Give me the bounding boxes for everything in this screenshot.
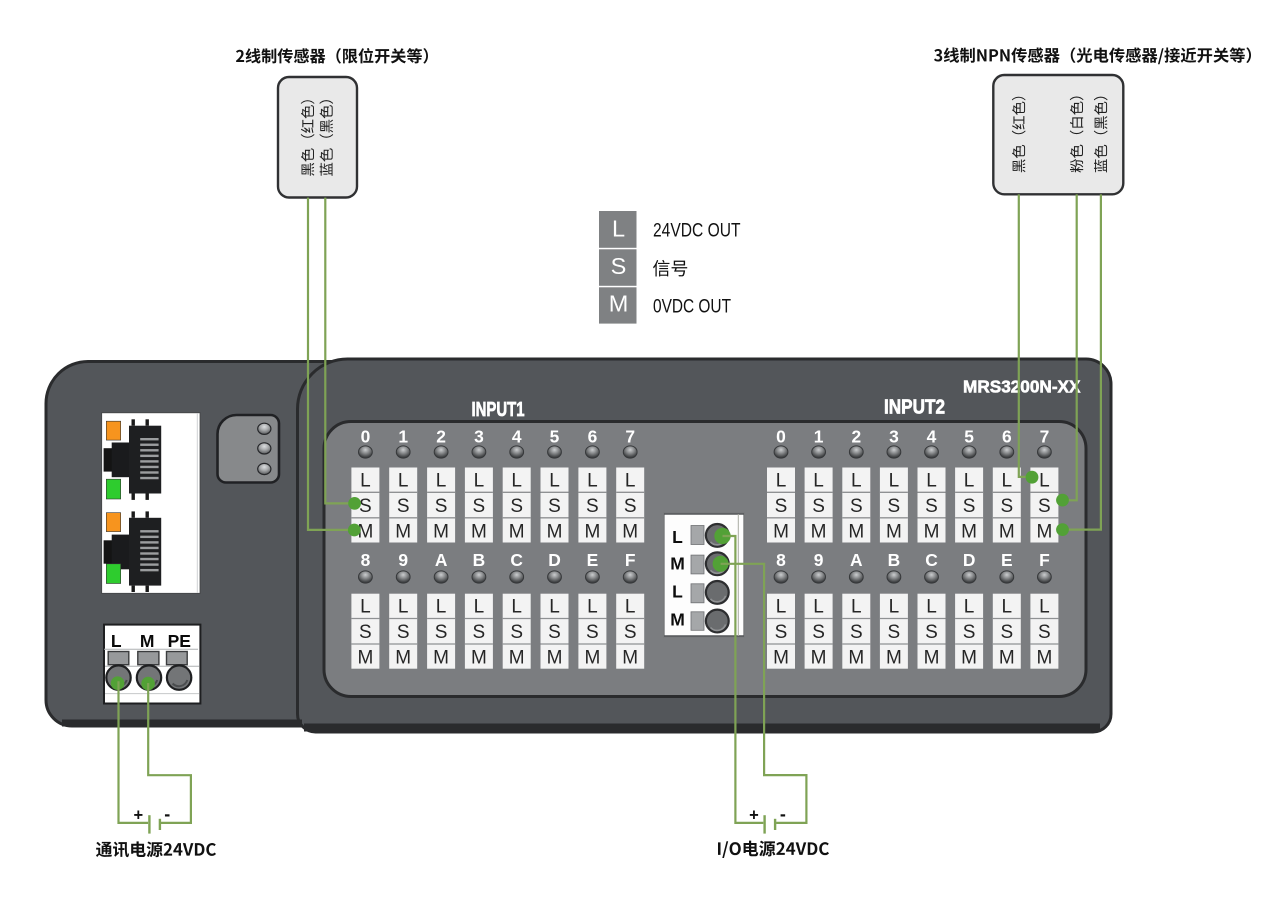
svg-text:S: S [1038,622,1051,643]
svg-text:L: L [813,597,824,618]
svg-text:S: S [624,496,637,517]
svg-text:4: 4 [927,426,937,446]
svg-text:M: M [999,521,1015,542]
svg-text:S: S [925,622,938,643]
svg-text:M: M [961,648,977,669]
svg-text:L: L [111,631,122,651]
svg-text:M: M [547,521,563,542]
svg-text:7: 7 [625,426,635,446]
svg-text:L: L [612,215,625,241]
svg-text:3: 3 [889,426,899,446]
svg-text:MRS3200N-XX: MRS3200N-XX [963,377,1081,397]
svg-text:L: L [625,470,636,491]
svg-text:L: L [851,597,862,618]
svg-text:0: 0 [776,426,786,446]
svg-text:M: M [848,521,864,542]
svg-text:M: M [471,521,487,542]
svg-text:S: S [963,622,976,643]
svg-text:L: L [436,597,447,618]
svg-text:-: - [780,804,786,824]
svg-text:S: S [1000,622,1013,643]
svg-text:M: M [584,521,600,542]
svg-text:5: 5 [964,426,974,446]
svg-text:24VDC OUT: 24VDC OUT [653,220,741,241]
svg-text:M: M [924,521,940,542]
svg-text:S: S [586,622,599,643]
svg-text:M: M [609,291,629,317]
svg-text:M: M [811,521,827,542]
svg-text:+: + [749,807,759,825]
svg-text:L: L [851,470,862,491]
svg-text:6: 6 [588,426,598,446]
svg-text:M: M [999,648,1015,669]
svg-text:S: S [548,622,561,643]
svg-text:2: 2 [436,426,446,446]
svg-text:M: M [509,521,525,542]
svg-text:S: S [624,622,637,643]
svg-text:M: M [886,648,902,669]
svg-text:+: + [133,807,143,825]
svg-text:L: L [398,597,409,618]
svg-text:L: L [813,470,824,491]
svg-text:C: C [925,550,938,570]
svg-text:1: 1 [814,426,824,446]
svg-text:S: S [1000,496,1013,517]
svg-text:L: L [964,470,975,491]
svg-text:M: M [811,648,827,669]
svg-text:L: L [964,597,975,618]
svg-text:L: L [889,597,900,618]
svg-text:M: M [395,521,411,542]
svg-text:A: A [850,550,863,570]
svg-text:M: M [547,648,563,669]
svg-text:S: S [850,622,863,643]
svg-text:M: M [584,648,600,669]
svg-text:INPUT2: INPUT2 [884,397,945,419]
svg-text:M: M [773,648,789,669]
svg-text:E: E [1001,550,1013,570]
svg-text:L: L [587,597,598,618]
svg-text:S: S [775,496,788,517]
svg-text:0: 0 [361,426,371,446]
svg-text:L: L [360,470,371,491]
svg-text:F: F [625,550,636,570]
svg-text:S: S [586,496,599,517]
svg-text:M: M [140,631,155,651]
svg-text:S: S [888,496,901,517]
svg-text:F: F [1039,550,1050,570]
svg-text:8: 8 [776,550,786,570]
svg-text:L: L [926,470,937,491]
svg-text:L: L [1039,470,1050,491]
svg-text:S: S [812,496,825,517]
svg-text:S: S [888,622,901,643]
svg-text:L: L [776,597,787,618]
svg-text:M: M [509,648,525,669]
svg-text:L: L [1039,597,1050,618]
svg-text:0VDC OUT: 0VDC OUT [653,297,731,318]
svg-text:8: 8 [361,550,371,570]
svg-text:D: D [963,550,976,570]
svg-text:M: M [622,521,638,542]
svg-text:L: L [1002,597,1013,618]
svg-text:5: 5 [550,426,560,446]
svg-text:S: S [435,622,448,643]
svg-text:E: E [587,550,599,570]
svg-text:S: S [473,496,486,517]
svg-text:M: M [886,521,902,542]
svg-text:L: L [549,470,560,491]
svg-text:L: L [360,597,371,618]
svg-text:2: 2 [851,426,861,446]
svg-text:S: S [812,622,825,643]
svg-text:M: M [357,648,373,669]
svg-text:-: - [164,804,170,824]
svg-text:S: S [1038,496,1051,517]
svg-text:6: 6 [1002,426,1012,446]
svg-text:1: 1 [398,426,408,446]
svg-text:L: L [436,470,447,491]
svg-text:S: S [397,622,410,643]
svg-text:INPUT1: INPUT1 [472,399,525,421]
svg-text:4: 4 [512,426,522,446]
svg-text:D: D [548,550,561,570]
svg-text:S: S [510,622,523,643]
svg-text:L: L [511,597,522,618]
svg-text:L: L [889,470,900,491]
svg-text:L: L [511,470,522,491]
svg-text:L: L [776,470,787,491]
svg-text:PE: PE [168,631,191,651]
svg-text:B: B [473,550,486,570]
svg-text:M: M [622,648,638,669]
svg-text:7: 7 [1040,426,1050,446]
svg-text:M: M [961,521,977,542]
svg-text:9: 9 [398,550,408,570]
svg-text:S: S [473,622,486,643]
svg-text:B: B [888,550,901,570]
svg-text:L: L [474,597,485,618]
svg-text:S: S [611,253,627,279]
svg-text:M: M [433,648,449,669]
svg-text:C: C [510,550,523,570]
svg-text:M: M [670,554,685,574]
svg-text:S: S [850,496,863,517]
svg-text:M: M [670,609,685,629]
svg-text:L: L [672,527,683,547]
svg-text:9: 9 [814,550,824,570]
svg-text:M: M [1036,521,1052,542]
svg-text:S: S [435,496,448,517]
svg-text:M: M [1036,648,1052,669]
svg-text:M: M [848,648,864,669]
svg-text:M: M [395,648,411,669]
svg-text:M: M [433,521,449,542]
svg-text:3: 3 [474,426,484,446]
svg-text:L: L [587,470,598,491]
svg-text:S: S [510,496,523,517]
svg-text:S: S [359,496,372,517]
svg-text:L: L [625,597,636,618]
svg-text:S: S [359,622,372,643]
svg-text:L: L [474,470,485,491]
svg-text:S: S [548,496,561,517]
svg-text:M: M [924,648,940,669]
svg-text:M: M [773,521,789,542]
svg-text:S: S [775,622,788,643]
svg-text:L: L [549,597,560,618]
svg-text:L: L [672,581,683,601]
svg-text:L: L [926,597,937,618]
svg-text:S: S [963,496,976,517]
svg-text:S: S [397,496,410,517]
svg-text:M: M [471,648,487,669]
svg-text:L: L [398,470,409,491]
svg-text:L: L [1002,470,1013,491]
svg-text:A: A [435,550,448,570]
svg-text:S: S [925,496,938,517]
